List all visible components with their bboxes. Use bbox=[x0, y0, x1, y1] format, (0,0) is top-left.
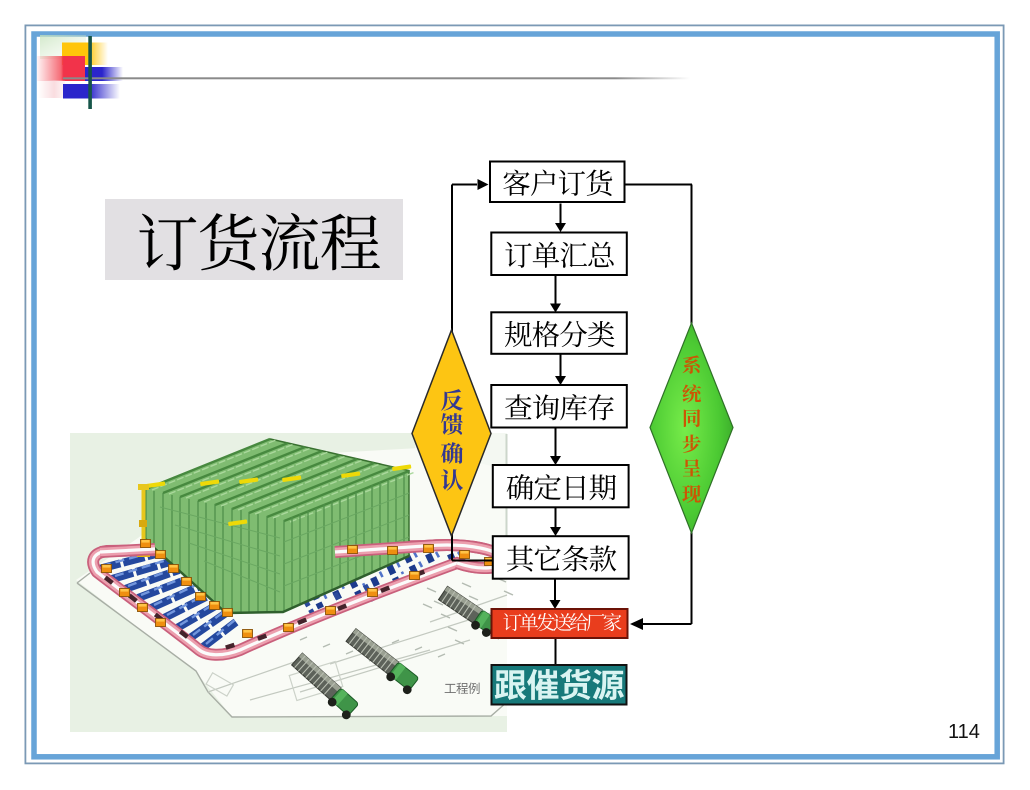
svg-text:114: 114 bbox=[948, 721, 980, 743]
